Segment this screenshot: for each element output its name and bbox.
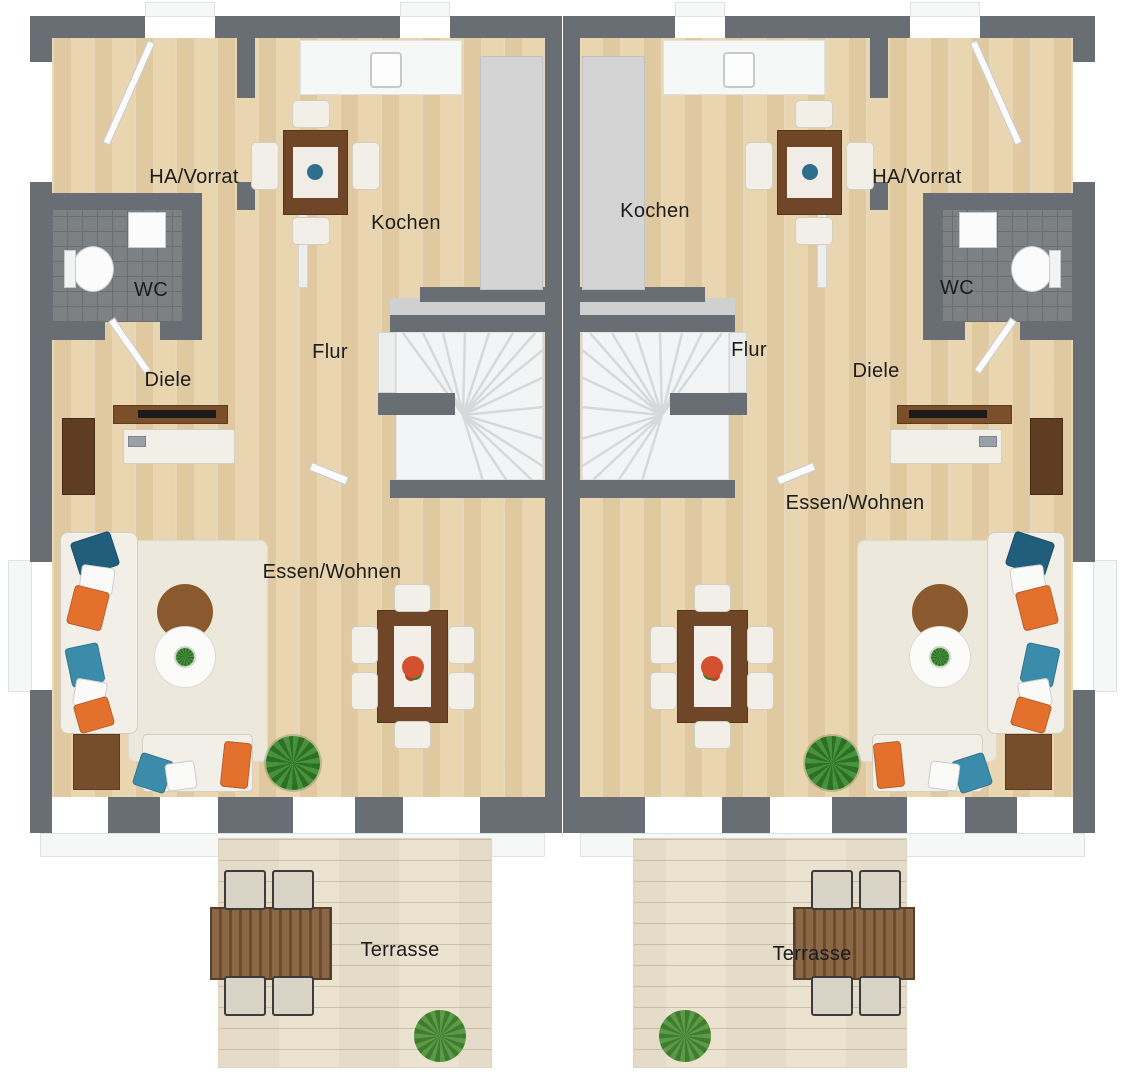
wall-top-b [725, 16, 910, 38]
dining-chair [394, 584, 431, 612]
wc-sink [128, 212, 166, 248]
wall-shelf [1030, 418, 1063, 495]
dining-chair [448, 672, 475, 710]
media-device [979, 436, 997, 447]
dining-chair [650, 626, 677, 664]
kitchen-chair [795, 217, 833, 245]
room-label-diele-left: Diele [144, 370, 191, 390]
wall-shelf [62, 418, 95, 495]
wall-stairs-bottom [390, 480, 545, 498]
kitchen-chair [352, 142, 380, 190]
bay-window [1093, 560, 1117, 692]
wall-ha-kitchen-a [237, 38, 255, 98]
unit-right [563, 0, 1125, 1080]
toilet [1011, 246, 1053, 292]
kitchen-sink [370, 52, 402, 88]
table-plant [176, 648, 194, 666]
pillow [927, 760, 961, 792]
kitchen-chair [795, 100, 833, 128]
wall-wc-bottom-a [1020, 322, 1095, 340]
wall-bottom-a [1075, 797, 1095, 833]
wall-wc-bottom-b [923, 322, 965, 340]
wall-bottom-b [965, 797, 1017, 833]
dining-chair [351, 672, 378, 710]
room-label-kochen-left: Kochen [371, 213, 441, 233]
toilet-tank [1049, 250, 1061, 288]
wall-left-b [1073, 182, 1095, 562]
wall-wc-top [923, 193, 1095, 210]
pillow [220, 741, 253, 790]
room-label-wc-right: WC [940, 278, 974, 298]
terrace-chair [859, 976, 901, 1016]
terrace-chair [272, 976, 314, 1016]
terrace-chair [224, 976, 266, 1016]
wall-stairs-left [378, 332, 396, 393]
entry-step [145, 2, 215, 17]
room-label-terrasse-left: Terrasse [360, 940, 439, 960]
wall-left-a [30, 16, 52, 62]
wc-sink [959, 212, 997, 248]
unit-left [0, 0, 562, 1080]
kitchen-chair [745, 142, 773, 190]
terrace-plant [414, 1010, 466, 1062]
tv-screen [909, 410, 987, 418]
wall-stairs-top [580, 315, 735, 332]
terrace-chair [859, 870, 901, 910]
dining-chair [694, 584, 731, 612]
dining-chair [448, 626, 475, 664]
toilet [72, 246, 114, 292]
terrace-plant [659, 1010, 711, 1062]
dining-chair [747, 672, 774, 710]
wall-top-b [215, 16, 400, 38]
table-plant [931, 648, 949, 666]
decor-bowl [307, 164, 323, 180]
decor-bowl [802, 164, 818, 180]
wall-wc-top [30, 193, 202, 210]
wall-wc-right [923, 210, 943, 322]
wall-bottom-d [722, 797, 770, 833]
wall-stairs-bottom [580, 480, 735, 498]
dining-chair [747, 626, 774, 664]
dining-chair [694, 721, 731, 749]
kitchen-worktop [582, 56, 645, 290]
room-label-diele-right: Diele [852, 361, 899, 381]
wall-bottom-a [30, 797, 50, 833]
kitchen-chair [292, 100, 330, 128]
dining-chair [351, 626, 378, 664]
wall-wc-right [182, 210, 202, 322]
pillow [164, 760, 198, 792]
room-label-flur-right: Flur [731, 340, 767, 360]
kitchen-window-sill [675, 2, 725, 17]
room-label-wc-left: WC [134, 280, 168, 300]
wall-bottom-c [218, 797, 293, 833]
media-device [128, 436, 146, 447]
dining-chair [650, 672, 677, 710]
wall-left-a [1073, 16, 1095, 62]
wall-stairs-newel [378, 393, 455, 415]
kitchen-chair [292, 217, 330, 245]
kitchen-sink [723, 52, 755, 88]
flower-centerpiece [701, 656, 723, 678]
flower-centerpiece [402, 656, 424, 678]
wall-stairs-newel [670, 393, 747, 415]
room-label-kochen-right: Kochen [620, 201, 690, 221]
pillow [873, 741, 906, 790]
terrace-table [210, 907, 332, 980]
wall-stairs-top [390, 315, 545, 332]
room-label-essen-wohnen-right: Essen/Wohnen [786, 493, 925, 513]
wall-ha-kitchen-a [870, 38, 888, 98]
terrace-chair [224, 870, 266, 910]
room-label-terrasse-right: Terrasse [772, 944, 851, 964]
kitchen-window-sill [400, 2, 450, 17]
room-label-ha-vorrat-right: HA/Vorrat [872, 167, 961, 187]
terrace-chair [811, 870, 853, 910]
room-label-flur-left: Flur [312, 342, 348, 362]
terrace-chair [272, 870, 314, 910]
party-wall [563, 16, 580, 833]
wall-bottom-c [832, 797, 907, 833]
room-label-essen-wohnen-left: Essen/Wohnen [263, 562, 402, 582]
wall-bottom-d [355, 797, 403, 833]
side-table [73, 734, 120, 790]
plant [805, 736, 859, 790]
wall-left-b [30, 182, 52, 562]
terrace-chair [811, 976, 853, 1016]
party-wall [545, 16, 562, 833]
side-table [1005, 734, 1052, 790]
unit-content [0, 0, 562, 1080]
bay-window [8, 560, 32, 692]
wall-bottom-b [108, 797, 160, 833]
tv-screen [138, 410, 216, 418]
room-label-ha-vorrat-left: HA/Vorrat [149, 167, 238, 187]
unit-content [563, 0, 1125, 1080]
wall-wc-bottom-a [30, 322, 105, 340]
kitchen-worktop [480, 56, 543, 290]
dining-chair [394, 721, 431, 749]
toilet-tank [64, 250, 76, 288]
floor-plan-scene: HA/Vorrat Kochen WC Flur Diele Essen/Woh… [0, 0, 1125, 1080]
plant [266, 736, 320, 790]
entry-step [910, 2, 980, 17]
kitchen-chair [846, 142, 874, 190]
wall-wc-bottom-b [160, 322, 202, 340]
kitchen-chair [251, 142, 279, 190]
